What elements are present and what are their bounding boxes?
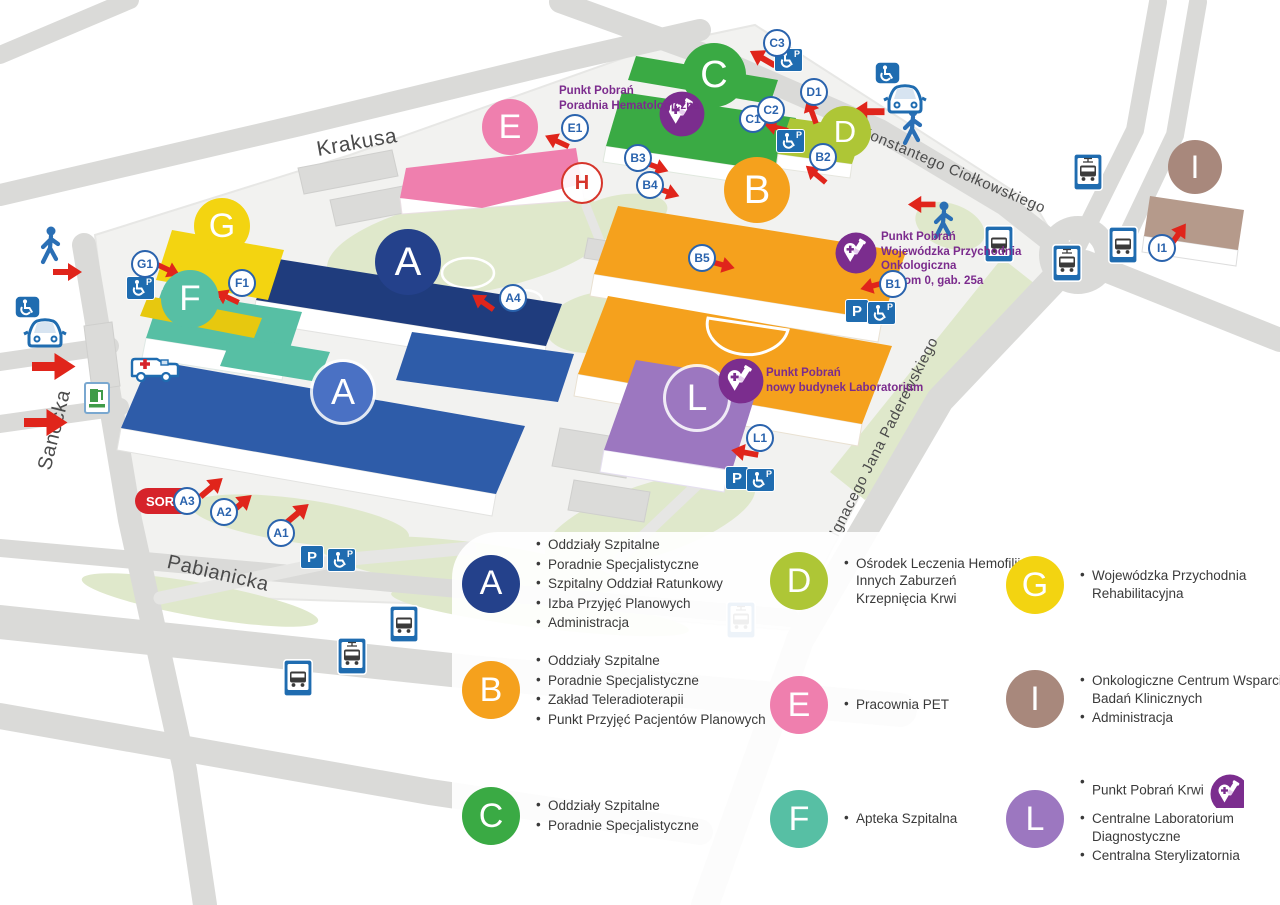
building-circle-I: I bbox=[1168, 140, 1222, 194]
entrance-marker-B2: B2 bbox=[809, 143, 837, 171]
blood-note-0: Punkt Pobrań Poradnia Hematologiczna bbox=[559, 84, 700, 113]
fuel-station-icon bbox=[84, 382, 110, 414]
blood-collection-icon bbox=[835, 232, 877, 274]
parking-icon: P bbox=[845, 299, 869, 323]
entrance-marker-A2: A2 bbox=[210, 498, 238, 526]
disabled-parking-icon: P bbox=[746, 468, 775, 492]
street-label-0: Krakusa bbox=[315, 124, 399, 162]
building-circle-A: A bbox=[375, 229, 441, 295]
entrance-marker-I1: I1 bbox=[1148, 234, 1176, 262]
entrance-marker-G1: G1 bbox=[131, 250, 159, 278]
building-circle-A: A bbox=[313, 362, 373, 422]
bus-stop-icon bbox=[1108, 226, 1138, 264]
entrance-marker-C2: C2 bbox=[757, 96, 785, 124]
entrance-marker-A3: A3 bbox=[173, 487, 201, 515]
entrance-marker-D1: D1 bbox=[800, 78, 828, 106]
disabled-parking-icon: P bbox=[776, 129, 805, 153]
direction-arrow bbox=[24, 406, 69, 439]
parking-icon: P bbox=[300, 545, 324, 569]
entrance-marker-L1: L1 bbox=[746, 424, 774, 452]
tram-stop-icon bbox=[1052, 244, 1082, 282]
building-circle-F: F bbox=[161, 270, 219, 328]
entrance-marker-F1: F1 bbox=[228, 269, 256, 297]
direction-arrow bbox=[465, 286, 498, 318]
entrance-marker-A4: A4 bbox=[499, 284, 527, 312]
building-circle-G: G bbox=[194, 198, 250, 254]
pedestrian-icon bbox=[36, 226, 64, 268]
entrance-marker-B4: B4 bbox=[636, 171, 664, 199]
entrance-marker-B5: B5 bbox=[688, 244, 716, 272]
bus-stop-icon bbox=[283, 659, 313, 697]
disabled-parking-icon: P bbox=[327, 548, 356, 572]
ambulance-icon bbox=[128, 349, 180, 385]
tram-stop-icon bbox=[1073, 153, 1103, 191]
helipad-icon: H bbox=[561, 162, 603, 204]
entrance-marker-B1: B1 bbox=[879, 270, 907, 298]
building-circle-B: B bbox=[724, 157, 790, 223]
disabled-parking-car-icon bbox=[13, 294, 75, 350]
building-circle-E: E bbox=[482, 99, 538, 155]
hospital-campus-map: KrakusaKonstantego CiołkowskiegoSanockaP… bbox=[0, 0, 1280, 905]
entrance-marker-B3: B3 bbox=[624, 144, 652, 172]
bus-stop-icon bbox=[389, 605, 419, 643]
blood-note-2: Punkt Pobrań nowy budynek Laboratorium bbox=[766, 366, 923, 395]
entrance-marker-E1: E1 bbox=[561, 114, 589, 142]
disabled-parking-icon: P bbox=[126, 276, 155, 300]
disabled-parking-icon: P bbox=[867, 301, 896, 325]
direction-arrow bbox=[32, 350, 77, 383]
entrance-marker-C3: C3 bbox=[763, 29, 791, 57]
entrance-marker-A1: A1 bbox=[267, 519, 295, 547]
tram-stop-icon bbox=[337, 637, 367, 675]
legend-panel bbox=[452, 532, 1280, 905]
blood-collection-icon bbox=[718, 358, 764, 404]
disabled-parking-car-icon bbox=[873, 60, 935, 116]
street-label-3: Pabianicka bbox=[165, 551, 271, 597]
